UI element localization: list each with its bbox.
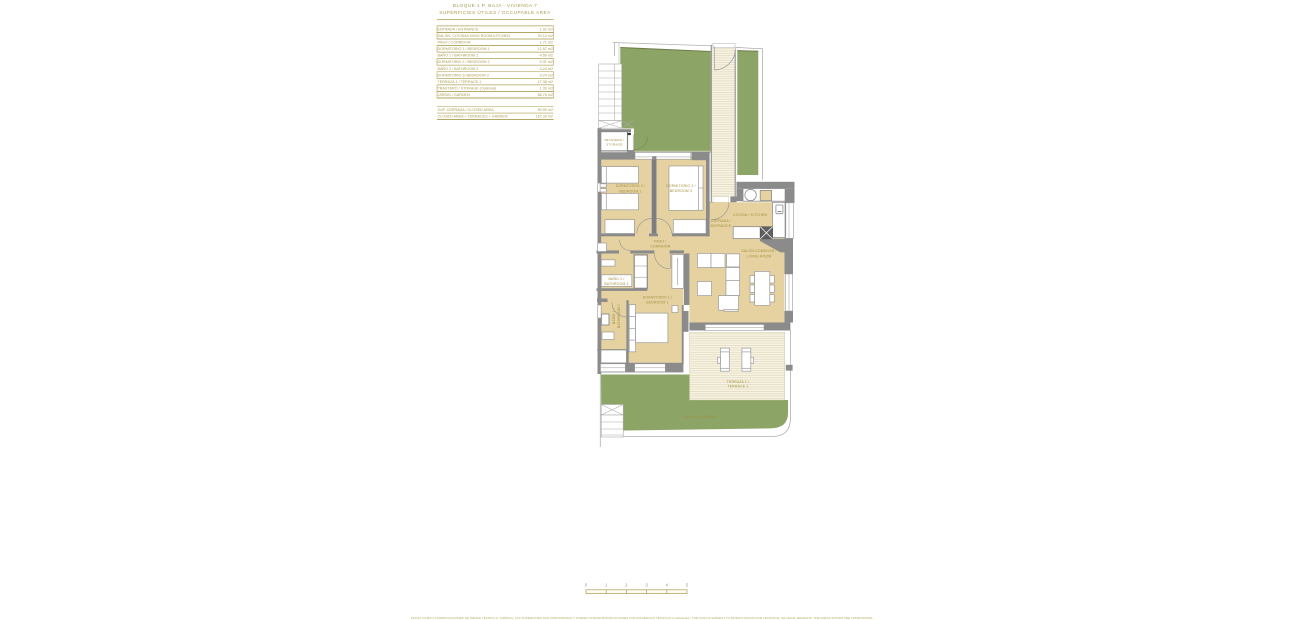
svg-text:4: 4	[666, 583, 669, 588]
svg-text:BATHROOM 2: BATHROOM 2	[604, 282, 628, 286]
svg-text:COCINA / KITCHEN: COCINA / KITCHEN	[733, 213, 767, 217]
svg-text:9.24 m2: 9.24 m2	[540, 73, 553, 77]
svg-text:BEDROOM 1: BEDROOM 1	[646, 300, 668, 304]
svg-text:JARDIN / GARDEN: JARDIN / GARDEN	[438, 93, 471, 97]
svg-text:SALÓN- COCINA/LIVING ROOM-KITC: SALÓN- COCINA/LIVING ROOM-KITCHEN	[438, 33, 510, 38]
svg-text:BATHROOM 1: BATHROOM 1	[617, 304, 621, 328]
svg-text:PLANO SUJETO A MODIFICACIONES: PLANO SUJETO A MODIFICACIONES DE ÍNDOLE …	[411, 615, 874, 620]
svg-text:1.39 m2: 1.39 m2	[540, 86, 553, 90]
svg-text:1.71 m2: 1.71 m2	[540, 41, 553, 45]
svg-text:BAÑO 1 /: BAÑO 1 /	[611, 308, 616, 324]
svg-text:TERRAZA 1 /: TERRAZA 1 /	[727, 380, 750, 384]
svg-text:1: 1	[605, 583, 608, 588]
svg-text:1.92 m2: 1.92 m2	[540, 27, 553, 31]
svg-text:4.24 m2: 4.24 m2	[540, 67, 553, 71]
svg-text:DORMITORIO 3/ BEDROOM 3: DORMITORIO 3/ BEDROOM 3	[438, 73, 489, 77]
svg-text:TRASTERO / STORAGE (Optional): TRASTERO / STORAGE (Optional)	[438, 86, 496, 90]
svg-text:BAÑO 2 / BATHROOM 2: BAÑO 2 / BATHROOM 2	[438, 66, 479, 71]
svg-text:BEDROOM 2: BEDROOM 2	[619, 189, 641, 193]
svg-text:BLOQUE 1 P. BAJA - VIVIENDA 7: BLOQUE 1 P. BAJA - VIVIENDA 7	[453, 3, 537, 9]
svg-text:TERRAZA 1 / TERRACE 1: TERRAZA 1 / TERRACE 1	[438, 80, 482, 84]
svg-text:SALÓN-COMEDOR /: SALÓN-COMEDOR /	[741, 248, 776, 253]
svg-text:PASO /: PASO /	[654, 239, 666, 243]
svg-text:0: 0	[585, 583, 588, 588]
svg-text:2: 2	[625, 583, 628, 588]
svg-text:ENTRANCE: ENTRANCE	[711, 224, 732, 228]
svg-text:CORRIDOR: CORRIDOR	[650, 244, 670, 248]
svg-text:3: 3	[645, 583, 648, 588]
svg-text:DORMITORIO 1 / BEDROOM 1: DORMITORIO 1 / BEDROOM 1	[438, 47, 490, 51]
svg-text:TRASTERO /: TRASTERO /	[604, 138, 624, 142]
svg-text:BAÑO 1 / BATHROOM 1: BAÑO 1 / BATHROOM 1	[438, 53, 479, 58]
svg-text:DORMITORIO 3 /: DORMITORIO 3 /	[666, 184, 696, 188]
svg-text:SUPERFICIES ÚTILES / OCCUPABLE: SUPERFICIES ÚTILES / OCCUPABLE AREA	[439, 9, 551, 16]
svg-text:17.38 m2: 17.38 m2	[538, 80, 553, 84]
svg-text:DORMITORIO 2 /: DORMITORIO 2 /	[616, 184, 646, 188]
svg-text:PASO / CORRIDOR: PASO / CORRIDOR	[438, 41, 471, 45]
svg-text:STORAGE: STORAGE	[606, 143, 622, 147]
svg-text:12.57 m2: 12.57 m2	[538, 47, 553, 51]
svg-text:SUP. CERRADA / CLOSED AREA: SUP. CERRADA / CLOSED AREA	[438, 108, 495, 112]
svg-text:ENTRADA /: ENTRADA /	[711, 219, 731, 223]
svg-text:88.76 m2: 88.76 m2	[538, 93, 553, 97]
svg-text:DORMITORIO 2 / BEDROOM 2: DORMITORIO 2 / BEDROOM 2	[438, 60, 490, 64]
svg-text:BEDROOM 3: BEDROOM 3	[670, 189, 692, 193]
svg-text:CLOSED AREA + TERRACES + GARDE: CLOSED AREA + TERRACES + GARDEN	[438, 115, 508, 119]
svg-text:ENTRADA / ENTRANCE: ENTRADA / ENTRANCE	[438, 27, 479, 31]
svg-text:30.13 m2: 30.13 m2	[538, 34, 553, 38]
svg-text:5: 5	[686, 583, 689, 588]
svg-text:JARDIN / GARDEN: JARDIN / GARDEN	[684, 415, 717, 419]
svg-text:167.33 m2: 167.33 m2	[536, 115, 553, 119]
svg-text:90.99 m2: 90.99 m2	[538, 108, 553, 112]
svg-text:4.59 m2: 4.59 m2	[540, 54, 553, 58]
svg-text:DORMITORIO 1 /: DORMITORIO 1 /	[643, 295, 673, 299]
svg-text:BAÑO 2 /: BAÑO 2 /	[609, 276, 625, 281]
svg-text:9.31 m2: 9.31 m2	[540, 60, 553, 64]
svg-text:LIVING ROOM: LIVING ROOM	[747, 254, 772, 258]
svg-text:TERRACE 1: TERRACE 1	[728, 385, 749, 389]
